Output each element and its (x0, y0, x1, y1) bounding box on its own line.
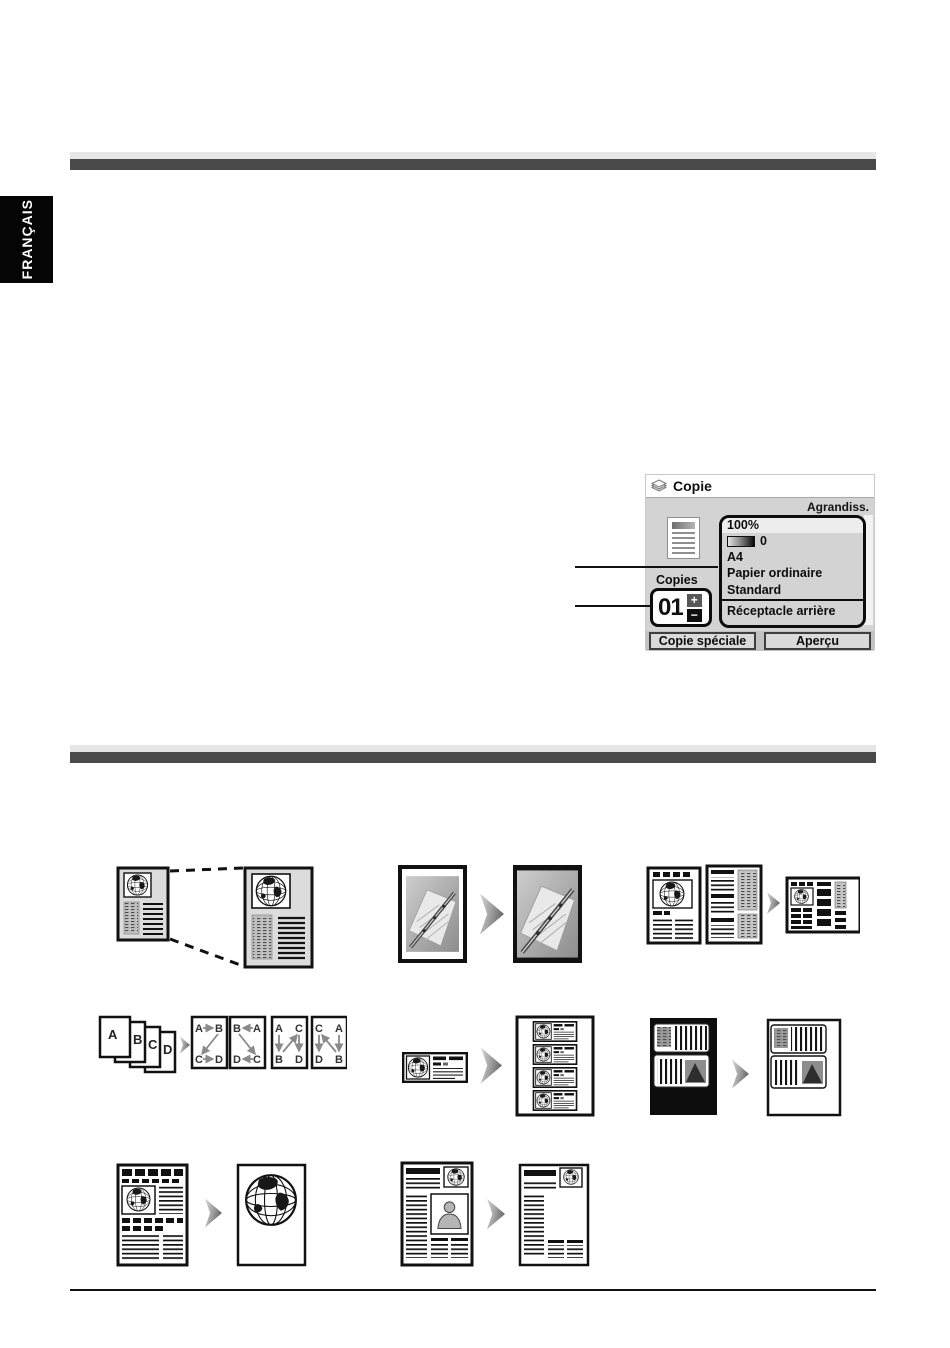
svg-text:A: A (108, 1027, 118, 1042)
svg-text:A: A (253, 1023, 261, 1035)
intensity-value: 0 (760, 534, 767, 548)
setting-quality: Standard (722, 582, 863, 599)
setting-zoom: 100% (722, 518, 863, 533)
svg-text:B: B (233, 1023, 241, 1035)
svg-text:D: D (215, 1054, 223, 1066)
document-icon (667, 517, 700, 559)
svg-text:D: D (295, 1054, 303, 1066)
document-icon-lines (672, 532, 695, 554)
copies-value: 01 (658, 596, 683, 620)
svg-text:C: C (253, 1054, 261, 1066)
svg-text:B: B (335, 1054, 343, 1066)
lcd-copy-screenshot: Copie Agrandiss. 100% 0 A4 Papier ordina… (645, 474, 875, 650)
lcd-title-bar: Copie (646, 475, 874, 498)
svg-text:A: A (335, 1023, 343, 1035)
illustration-frame-erase-copy (645, 1012, 845, 1118)
callout-line-settings (575, 566, 718, 568)
svg-text:A: A (275, 1023, 283, 1035)
section-bar-middle-light (70, 745, 876, 752)
copies-counter: 01 + − (650, 588, 712, 627)
arrow-right-icon (205, 1199, 222, 1228)
layout-option-3: A C B D (272, 1017, 307, 1068)
arrow-right-icon (487, 1199, 505, 1230)
arrow-right-icon (480, 894, 504, 935)
language-tab-label: FRANÇAIS (19, 199, 35, 279)
arrow-right-icon (767, 892, 780, 914)
intensity-bar-icon (727, 536, 755, 547)
illustration-borderless-copy (395, 860, 590, 968)
layout-option-4: C A D B (312, 1017, 347, 1068)
svg-text:B: B (133, 1032, 142, 1047)
arrow-right-icon (180, 1037, 190, 1054)
svg-text:C: C (148, 1037, 158, 1052)
special-copy-button: Copie spéciale (649, 632, 756, 650)
svg-text:D: D (233, 1054, 241, 1066)
svg-text:A: A (195, 1023, 203, 1035)
section-bar-middle (70, 745, 876, 763)
copy-mode-icon (650, 479, 668, 494)
plus-button: + (687, 594, 702, 607)
preview-button: Aperçu (764, 632, 871, 650)
layout-option-2: B A D C (230, 1017, 265, 1068)
setting-paper-size: A4 (722, 549, 863, 565)
section-bar-top-dark (70, 159, 876, 170)
svg-text:C: C (315, 1023, 323, 1035)
minus-button: − (687, 609, 702, 622)
copy-settings-panel: 100% 0 A4 Papier ordinaire Standard Réce… (719, 515, 866, 628)
section-bar-top-light (70, 152, 876, 159)
language-tab-francais: FRANÇAIS (0, 196, 53, 283)
illustration-image-repeat-copy (395, 1008, 600, 1120)
arrow-right-icon (481, 1048, 502, 1084)
illustration-two-on-one-copy (645, 858, 860, 946)
copies-label: Copies (656, 573, 698, 587)
svg-text:B: B (275, 1054, 283, 1066)
svg-text:C: C (295, 1023, 303, 1035)
setting-paper-type: Papier ordinaire (722, 565, 863, 582)
illustration-trimming-copy (110, 1156, 310, 1270)
layout-option-1: A B C D (192, 1017, 227, 1068)
lcd-button-bar: Copie spéciale Aperçu (646, 631, 874, 651)
footer-rule (70, 1289, 876, 1291)
manual-page: FRANÇAIS Copie Agrandiss. 100% 0 (0, 0, 950, 1348)
arrow-right-icon (732, 1060, 749, 1089)
svg-text:D: D (163, 1042, 172, 1057)
lcd-body: Agrandiss. 100% 0 A4 Papier ordinaire St… (646, 498, 874, 631)
stacked-originals: A B C D (100, 1017, 175, 1072)
section-bar-middle-dark (70, 752, 876, 763)
setting-paper-tray: Réceptacle arrière (722, 599, 863, 623)
section-bar-top (70, 152, 876, 170)
svg-text:C: C (195, 1054, 203, 1066)
setting-intensity: 0 (722, 533, 863, 549)
copies-stepper: + − (687, 594, 702, 622)
illustration-enlarge-reduce-copy (95, 858, 320, 970)
svg-text:D: D (315, 1054, 323, 1066)
callout-line-copies (575, 605, 652, 607)
illustration-masking-copy (395, 1156, 595, 1270)
illustration-four-on-one-copy: A B C D A B C D B A D C (95, 1008, 347, 1074)
document-icon-header (672, 522, 695, 529)
lcd-screen-title: Copie (673, 478, 712, 494)
zoom-setting-label: Agrandiss. (807, 500, 869, 514)
svg-text:B: B (215, 1023, 223, 1035)
